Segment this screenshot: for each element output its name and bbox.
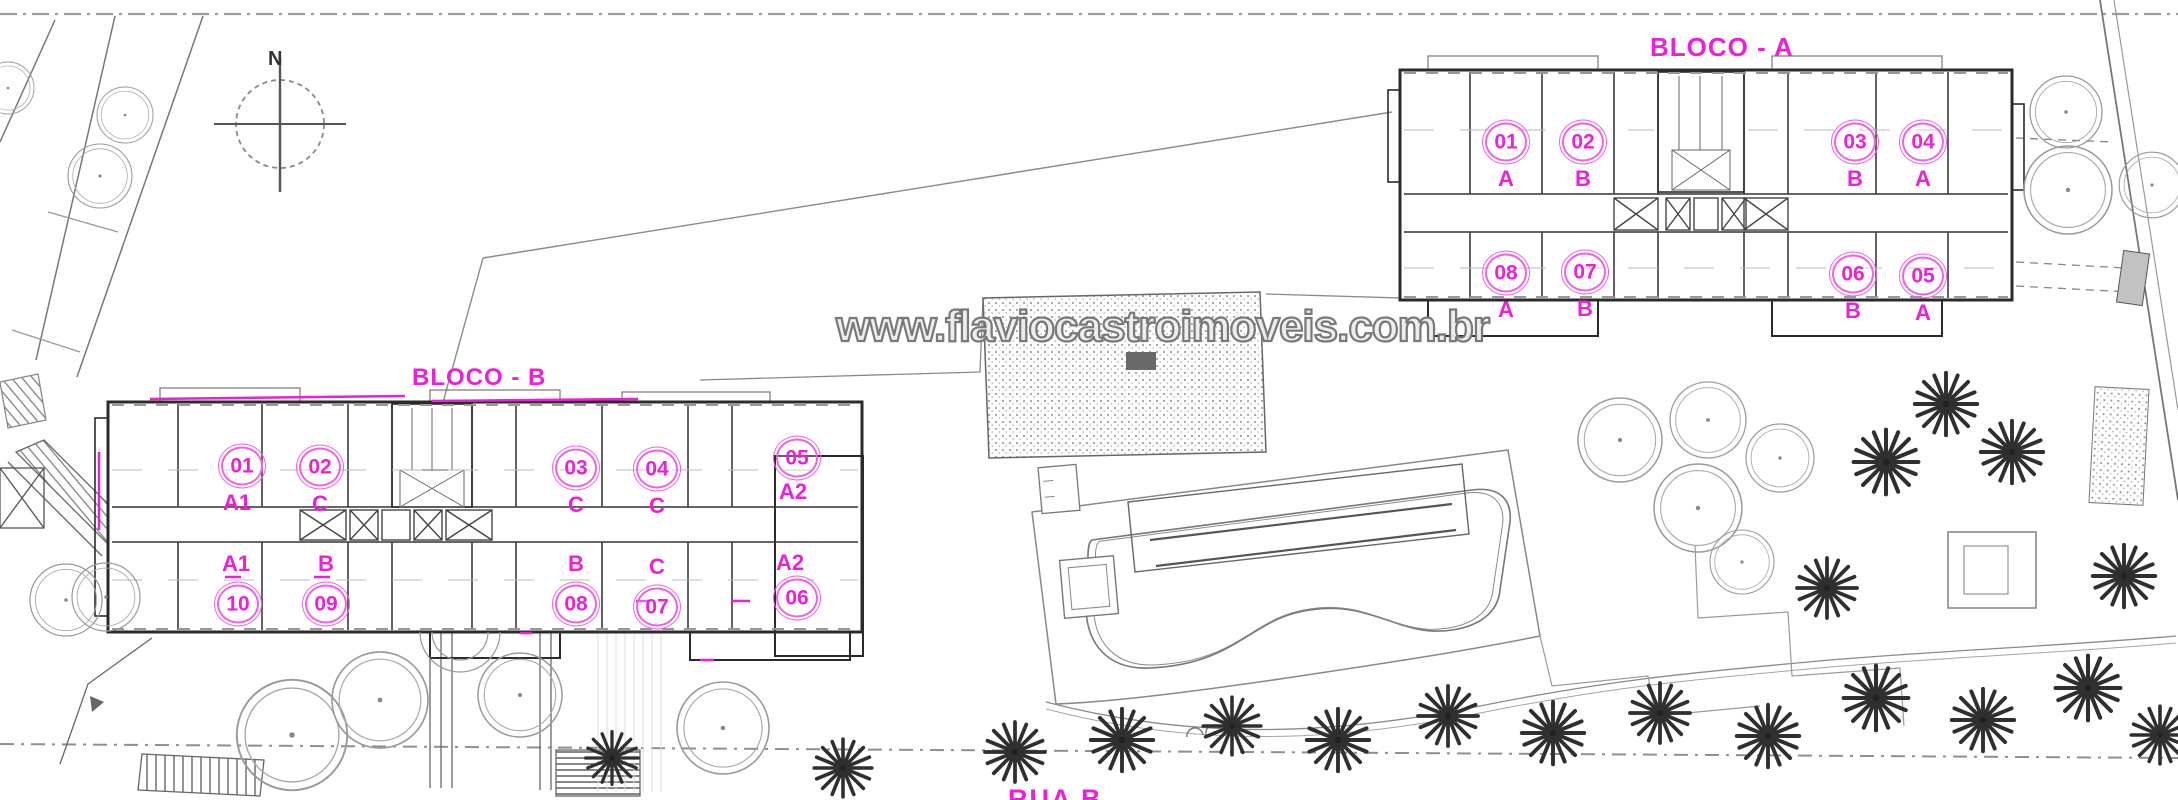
unit-number-badge: 01 [1485,123,1527,162]
tree-icon [677,682,769,774]
palm-tree-icon [1797,558,1857,618]
unit-number-badge: 08 [1485,254,1527,293]
site-plan-drawing [0,0,2178,800]
palm-tree-icon [1307,709,1369,771]
unit-number-badge: 04 [1902,123,1944,162]
tree-icon [2024,146,2112,234]
unit-number-badge: 05 [1902,257,1944,296]
unit-number-badge: 04 [636,450,678,489]
palm-tree-icon [1203,697,1261,755]
unit-number-badge: 05 [776,439,818,478]
bloco-b-plan [95,388,863,672]
palm-tree-icon [985,722,1045,782]
unit-type-letter: A2 [779,479,807,505]
palm-tree-icon [1981,421,2043,483]
palm-tree-icon [1522,702,1584,764]
unit-type-letter: B [318,551,334,577]
unit-type-letter: A [1498,297,1514,323]
palm-tree-icon [1091,709,1153,771]
unit-type-letter: C [312,491,328,517]
swimming-pool-area [1032,450,2176,737]
unit-type-letter: C [649,493,665,519]
unit-number-badge: 02 [1562,123,1604,162]
unit-type-letter: A [1915,166,1931,192]
unit-type-letter: B [568,551,584,577]
palm-tree-icon [1844,666,1909,731]
tree-icon [30,564,102,636]
unit-type-letter: A [1915,300,1931,326]
north-label: N [268,48,282,71]
bloco-a-label: BLOCO - A [1650,32,1794,63]
tree-icon [1670,382,1746,458]
bloco-b-label: BLOCO - B [412,364,546,392]
unit-type-letter: A [1498,166,1514,192]
site-plan: N BLOCO - A BLOCO - B www.flaviocastroim… [0,0,2178,800]
palm-tree-icon [2056,656,2121,721]
tree-icon [1746,424,1814,492]
unit-type-letter: A1 [222,551,250,577]
tree-icon [478,653,562,737]
unit-number-badge: 09 [305,585,347,624]
watermark: www.flaviocastroimoveis.com.br [836,302,1489,352]
unit-number-badge: 10 [217,585,259,624]
unit-type-letter: A2 [776,550,804,576]
unit-type-letter: C [568,492,584,518]
tree-icon [2030,76,2102,148]
palm-tree-icon [1418,686,1478,746]
palm-tree-icon [814,739,872,797]
unit-number-badge: 08 [555,585,597,624]
palm-tree-icon [1630,683,1690,743]
street-label-rua-b: RUA B [1008,784,1103,800]
unit-number-badge: 07 [1564,253,1606,292]
tree-icon [1578,398,1662,482]
unit-number-badge: 06 [776,579,818,618]
palm-tree-icon [2131,706,2178,764]
tree-icon [97,87,153,143]
unit-type-letter: C [649,554,665,580]
unit-type-letter: B [1575,166,1591,192]
tree-icon [237,680,347,790]
palm-tree-icon [1952,689,2014,751]
unit-number-badge: 02 [299,448,341,487]
palm-tree-icon [1854,430,1919,495]
tree-icon [1710,530,1774,594]
palm-tree-icon [586,732,639,785]
unit-number-badge: 06 [1832,255,1874,294]
palm-tree-icon [1915,373,1977,435]
tree-icon [332,652,428,748]
palm-tree-icon [2093,545,2155,607]
tree-icon [0,62,34,114]
compass-north-icon [214,58,346,192]
unit-number-badge: 07 [636,588,678,627]
unit-number-badge: 01 [221,447,263,486]
tree-icon [1654,464,1742,552]
unit-type-letter: A1 [223,490,251,516]
palm-tree-icon [1737,705,1799,767]
unit-number-badge: 03 [555,449,597,488]
unit-type-letter: B [1845,298,1861,324]
unit-type-letter: B [1577,296,1593,322]
unit-number-badge: 03 [1834,123,1876,162]
unit-type-letter: B [1847,166,1863,192]
